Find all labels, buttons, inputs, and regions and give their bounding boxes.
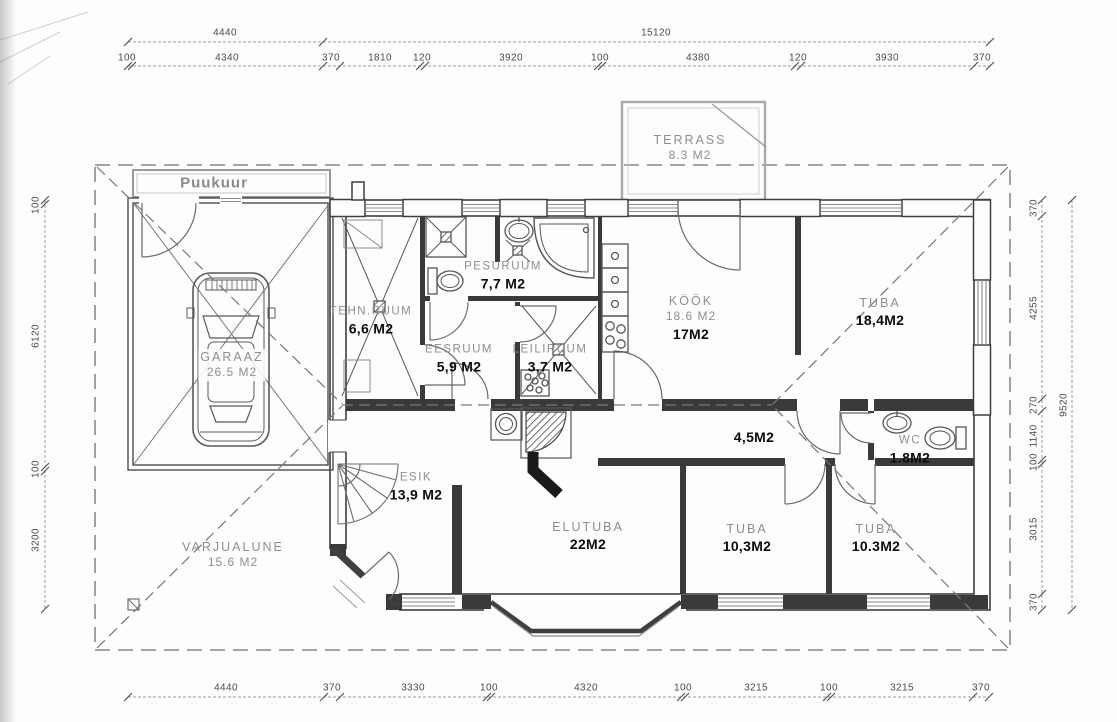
room-area-marker: 18,4M2 xyxy=(856,311,905,329)
room-label-tuba-ne: TUBA 18,4M2 xyxy=(856,295,905,329)
room-area-marker: 4,5M2 xyxy=(734,428,774,446)
garage-walls xyxy=(128,198,333,470)
dim-label: 370 xyxy=(323,683,341,694)
dim-label: 4255 xyxy=(1029,296,1040,320)
room-name: TEHN.RUUM xyxy=(330,304,413,319)
room-area: 8.3 M2 xyxy=(653,148,726,164)
room-label-garaaz: GARAAZ 26.5 M2 xyxy=(198,349,265,381)
dim-label: 270 xyxy=(1029,396,1040,414)
room-name: GARAAZ xyxy=(198,349,265,365)
dim-label: 3015 xyxy=(1029,517,1040,541)
dim-label: 3215 xyxy=(744,683,768,694)
dim-label: 4340 xyxy=(215,53,239,64)
room-area-marker: 1.8M2 xyxy=(890,448,930,466)
scan-artifact-lines xyxy=(0,12,88,84)
dim-label: 100 xyxy=(1029,453,1040,471)
dim-label: 1810 xyxy=(368,53,392,64)
dim-label: 120 xyxy=(413,53,431,64)
room-label-leiliruum: LEILIRUUM 3,7 M2 xyxy=(513,342,588,375)
dim-label: 370 xyxy=(973,53,991,64)
room-name: KÖÖK xyxy=(666,293,716,309)
dim-label: 15120 xyxy=(641,28,671,39)
room-area: 18.6 M2 xyxy=(666,309,716,325)
room-area-marker: 10.3M2 xyxy=(852,537,901,555)
room-label-wc: WC 1.8M2 xyxy=(890,433,930,466)
room-area-marker: 10,3M2 xyxy=(723,537,772,555)
dim-label: 4440 xyxy=(214,683,238,694)
room-name: LEILIRUUM xyxy=(513,342,588,357)
garage-diagonals xyxy=(134,204,329,464)
room-area-marker: 22M2 xyxy=(552,535,624,553)
room-name: VARJUALUNE xyxy=(182,539,284,555)
room-name: TUBA xyxy=(856,295,905,311)
room-name: TERRASS xyxy=(653,132,726,148)
dim-label: 100 xyxy=(820,683,838,694)
dim-label: 4320 xyxy=(574,683,598,694)
dim-label: 120 xyxy=(789,53,807,64)
room-name: ELUTUBA xyxy=(552,519,624,535)
dim-label: 100 xyxy=(591,53,609,64)
dim-label: 1140 xyxy=(1029,424,1040,447)
room-label-elutuba: ELUTUBA 22M2 xyxy=(552,519,624,553)
room-area-marker: 3,7 M2 xyxy=(513,357,588,375)
room-name: EESRUUM xyxy=(425,342,493,357)
room-label-kook: KÖÖK 18.6 M2 17M2 xyxy=(666,293,716,343)
room-area: 26.5 M2 xyxy=(198,365,265,381)
room-label-eesruum: EESRUUM 5,9 M2 xyxy=(425,342,493,375)
room-name: ESIK xyxy=(390,470,443,485)
dim-label: 3200 xyxy=(31,528,42,552)
room-label-terrass: TERRASS 8.3 M2 xyxy=(653,132,726,164)
room-label-tehnruum: TEHN.RUUM 6,6 M2 xyxy=(330,304,413,337)
dim-label: 370 xyxy=(972,683,990,694)
room-label-esik: ESIK 13,9 M2 xyxy=(390,470,443,503)
dim-label: 3920 xyxy=(499,53,523,64)
room-label-tuba-se: TUBA 10.3M2 xyxy=(852,521,901,555)
room-area-marker: 17M2 xyxy=(666,325,716,343)
room-name: WC xyxy=(890,433,930,448)
dim-label: 3330 xyxy=(401,683,425,694)
dim-label: 100 xyxy=(31,460,42,478)
room-label-varjualune: VARJUALUNE 15.6 M2 xyxy=(182,539,284,571)
floor-plan-document: Puukuur TERRASS 8.3 M2 GARAAZ 26.5 M2 TE… xyxy=(0,0,1117,722)
dim-label: 100 xyxy=(480,683,498,694)
room-label-pesuruum: PESURUUM 7,7 M2 xyxy=(464,259,542,292)
dim-label: 100 xyxy=(118,53,136,64)
dim-label: 100 xyxy=(31,196,42,214)
room-area-marker: 7,7 M2 xyxy=(464,274,542,292)
dim-label: 370 xyxy=(1029,199,1040,217)
room-area-marker: 13,9 M2 xyxy=(390,485,443,503)
dim-label: 4380 xyxy=(686,53,710,64)
room-label-tuba-s: TUBA 10,3M2 xyxy=(723,521,772,555)
dim-label: 4440 xyxy=(213,28,237,39)
dim-label: 370 xyxy=(322,53,340,64)
shed-label: Puukuur xyxy=(180,173,248,193)
dim-label: 3215 xyxy=(890,683,914,694)
room-area-marker: 6,6 M2 xyxy=(330,319,413,337)
room-area-marker: 5,9 M2 xyxy=(425,357,493,375)
dim-label: 6120 xyxy=(31,324,42,348)
dim-label: 100 xyxy=(674,683,692,694)
dim-label: 3930 xyxy=(875,53,899,64)
room-label-koridor: 4,5M2 xyxy=(734,428,774,446)
dim-label: 370 xyxy=(1029,593,1040,611)
dim-label: 9520 xyxy=(1059,393,1070,417)
room-name: TUBA xyxy=(852,521,901,537)
room-name: TUBA xyxy=(723,521,772,537)
room-name: PESURUUM xyxy=(464,259,542,274)
room-area: 15.6 M2 xyxy=(182,555,284,571)
